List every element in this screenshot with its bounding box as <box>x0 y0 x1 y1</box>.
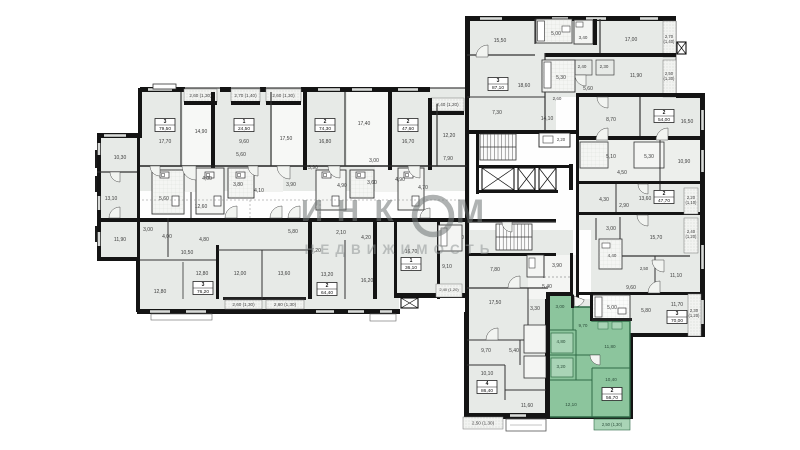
svg-text:54,00: 54,00 <box>658 117 670 123</box>
svg-text:17,50: 17,50 <box>280 136 293 142</box>
svg-text:5,90: 5,90 <box>308 165 318 171</box>
svg-text:5,30: 5,30 <box>644 154 654 160</box>
svg-text:7,30: 7,30 <box>492 110 502 116</box>
svg-text:2,40 (1,20): 2,40 (1,20) <box>439 287 459 292</box>
svg-text:3,00: 3,00 <box>606 226 616 232</box>
svg-text:18,60: 18,60 <box>518 83 531 89</box>
svg-text:Н: Н <box>337 193 359 228</box>
svg-text:2,40: 2,40 <box>578 64 587 69</box>
svg-text:86,40: 86,40 <box>481 388 493 394</box>
svg-text:9,10: 9,10 <box>442 264 452 270</box>
svg-text:5,10: 5,10 <box>606 154 616 160</box>
svg-text:2: 2 <box>663 191 666 197</box>
svg-text:2,60 (1,30): 2,60 (1,30) <box>189 93 212 98</box>
svg-text:16,70: 16,70 <box>402 139 415 145</box>
svg-text:56,70: 56,70 <box>606 395 618 401</box>
svg-text:10,10: 10,10 <box>481 371 494 377</box>
svg-text:5,00: 5,00 <box>607 305 617 311</box>
svg-text:16,20: 16,20 <box>361 278 374 284</box>
svg-text:2,60 (1,30): 2,60 (1,30) <box>272 93 295 98</box>
svg-text:9,60: 9,60 <box>626 285 636 291</box>
svg-text:4,70: 4,70 <box>418 185 428 191</box>
svg-text:(1,20): (1,20) <box>689 313 701 318</box>
svg-text:4: 4 <box>486 381 489 387</box>
svg-text:(1,20): (1,20) <box>686 234 698 239</box>
svg-text:11,90: 11,90 <box>630 73 642 79</box>
svg-text:4,20: 4,20 <box>361 235 371 241</box>
svg-text:4,50: 4,50 <box>617 170 627 176</box>
svg-text:5,40: 5,40 <box>542 284 552 290</box>
svg-text:4,40: 4,40 <box>608 253 617 258</box>
svg-text:4,90: 4,90 <box>337 183 347 189</box>
svg-text:11,10: 11,10 <box>670 273 682 279</box>
svg-text:3,20: 3,20 <box>557 364 566 369</box>
svg-text:17,00: 17,00 <box>625 37 638 43</box>
svg-text:13,10: 13,10 <box>105 196 118 202</box>
svg-text:11,80: 11,80 <box>604 344 616 349</box>
svg-text:64,40: 64,40 <box>321 290 333 296</box>
svg-text:5,00: 5,00 <box>551 31 561 37</box>
svg-text:2,20: 2,20 <box>557 137 566 142</box>
svg-text:76,20: 76,20 <box>197 289 209 295</box>
svg-text:5,80: 5,80 <box>641 308 651 314</box>
svg-text:3,90: 3,90 <box>286 182 296 188</box>
svg-text:12,80: 12,80 <box>154 289 167 295</box>
svg-text:3: 3 <box>164 119 167 125</box>
svg-text:И: И <box>301 193 323 228</box>
svg-text:2: 2 <box>407 119 410 125</box>
svg-text:3,00: 3,00 <box>369 158 379 164</box>
svg-text:11,90: 11,90 <box>114 237 126 243</box>
svg-text:2: 2 <box>611 388 614 394</box>
svg-text:3,00: 3,00 <box>143 227 153 233</box>
svg-text:3,40: 3,40 <box>579 35 588 40</box>
svg-text:14,90: 14,90 <box>195 129 208 135</box>
svg-text:2,60: 2,60 <box>553 96 562 101</box>
svg-text:17,40: 17,40 <box>358 121 371 127</box>
svg-text:3,00: 3,00 <box>556 304 565 309</box>
svg-text:74,30: 74,30 <box>319 126 331 132</box>
svg-text:1: 1 <box>243 119 246 125</box>
svg-text:(1,10): (1,10) <box>686 200 698 205</box>
svg-text:3: 3 <box>676 311 679 317</box>
svg-text:12,00: 12,00 <box>234 271 247 277</box>
svg-text:НЕДВИЖИМОСТЬ: НЕДВИЖИМОСТЬ <box>305 242 496 257</box>
svg-text:3,60: 3,60 <box>367 180 377 186</box>
svg-text:2: 2 <box>663 110 666 116</box>
svg-text:9,70: 9,70 <box>481 348 491 354</box>
svg-text:10,40: 10,40 <box>605 377 617 382</box>
svg-text:5,60: 5,60 <box>583 86 593 92</box>
svg-text:М: М <box>456 193 484 231</box>
svg-text:24,50: 24,50 <box>238 126 250 132</box>
svg-text:17,70: 17,70 <box>159 139 172 145</box>
svg-text:36,10: 36,10 <box>405 265 417 271</box>
svg-text:4,00: 4,00 <box>162 234 172 240</box>
svg-text:2,30: 2,30 <box>600 64 609 69</box>
svg-text:14,10: 14,10 <box>541 116 554 122</box>
svg-text:11,70: 11,70 <box>671 302 683 308</box>
svg-text:15,70: 15,70 <box>650 235 663 241</box>
svg-text:7,80: 7,80 <box>490 267 500 273</box>
svg-text:79,50: 79,50 <box>159 126 171 132</box>
svg-text:4,30: 4,30 <box>599 197 609 203</box>
svg-text:47,70: 47,70 <box>658 198 670 204</box>
svg-text:1: 1 <box>410 258 413 264</box>
svg-text:5,60: 5,60 <box>159 196 169 202</box>
svg-text:3: 3 <box>497 78 500 84</box>
svg-text:47,60: 47,60 <box>402 126 414 132</box>
svg-text:13,60: 13,60 <box>639 196 652 202</box>
svg-text:11,60: 11,60 <box>521 403 533 409</box>
svg-text:2,40 (1,20): 2,40 (1,20) <box>436 102 459 107</box>
svg-text:13,60: 13,60 <box>278 271 291 277</box>
svg-text:4,80: 4,80 <box>199 237 209 243</box>
svg-text:10,50: 10,50 <box>181 250 194 256</box>
svg-text:5,30: 5,30 <box>556 75 566 81</box>
svg-text:12,20: 12,20 <box>443 133 456 139</box>
svg-text:2,50 (1,30): 2,50 (1,30) <box>602 422 623 427</box>
svg-text:12,60: 12,60 <box>195 204 208 210</box>
svg-text:3,30: 3,30 <box>530 306 540 312</box>
svg-text:70,00: 70,00 <box>671 318 683 324</box>
svg-text:4,00: 4,00 <box>202 176 212 182</box>
svg-text:2,60 (1,30): 2,60 (1,30) <box>232 302 255 307</box>
svg-text:17,50: 17,50 <box>489 300 502 306</box>
svg-text:3,80: 3,80 <box>233 182 243 188</box>
svg-text:15,50: 15,50 <box>494 38 507 44</box>
svg-text:16,50: 16,50 <box>681 119 694 125</box>
svg-text:2,90: 2,90 <box>619 203 629 209</box>
svg-text:7,90: 7,90 <box>443 156 453 162</box>
svg-text:2: 2 <box>326 283 329 289</box>
svg-text:2,50: 2,50 <box>640 266 649 271</box>
svg-text:10,90: 10,90 <box>678 159 691 165</box>
svg-text:2,50 (1,30): 2,50 (1,30) <box>472 421 495 426</box>
svg-text:К: К <box>375 193 394 228</box>
svg-text:3: 3 <box>202 282 205 288</box>
svg-text:5,40: 5,40 <box>509 348 519 354</box>
svg-text:16,80: 16,80 <box>319 139 332 145</box>
svg-text:10,30: 10,30 <box>114 155 127 161</box>
svg-text:3,90: 3,90 <box>552 263 562 269</box>
svg-text:5,80: 5,80 <box>288 229 298 235</box>
svg-text:4,80: 4,80 <box>557 339 566 344</box>
svg-text:2,70 (1,40): 2,70 (1,40) <box>234 93 257 98</box>
svg-text:8,70: 8,70 <box>606 117 616 123</box>
svg-text:(1,40): (1,40) <box>664 39 676 44</box>
svg-text:2,60 (1,30): 2,60 (1,30) <box>274 302 297 307</box>
svg-text:4,10: 4,10 <box>254 188 264 194</box>
svg-text:5,60: 5,60 <box>236 152 246 158</box>
svg-text:9,70: 9,70 <box>579 323 588 328</box>
svg-text:87,10: 87,10 <box>492 85 504 91</box>
svg-text:13,20: 13,20 <box>321 272 334 278</box>
svg-text:12,10: 12,10 <box>565 402 577 407</box>
svg-text:9,60: 9,60 <box>239 139 249 145</box>
svg-text:(1,30): (1,30) <box>664 76 676 81</box>
svg-text:12,80: 12,80 <box>196 271 209 277</box>
svg-text:2,10: 2,10 <box>336 230 346 236</box>
svg-text:2: 2 <box>324 119 327 125</box>
svg-text:4,90: 4,90 <box>395 177 405 183</box>
